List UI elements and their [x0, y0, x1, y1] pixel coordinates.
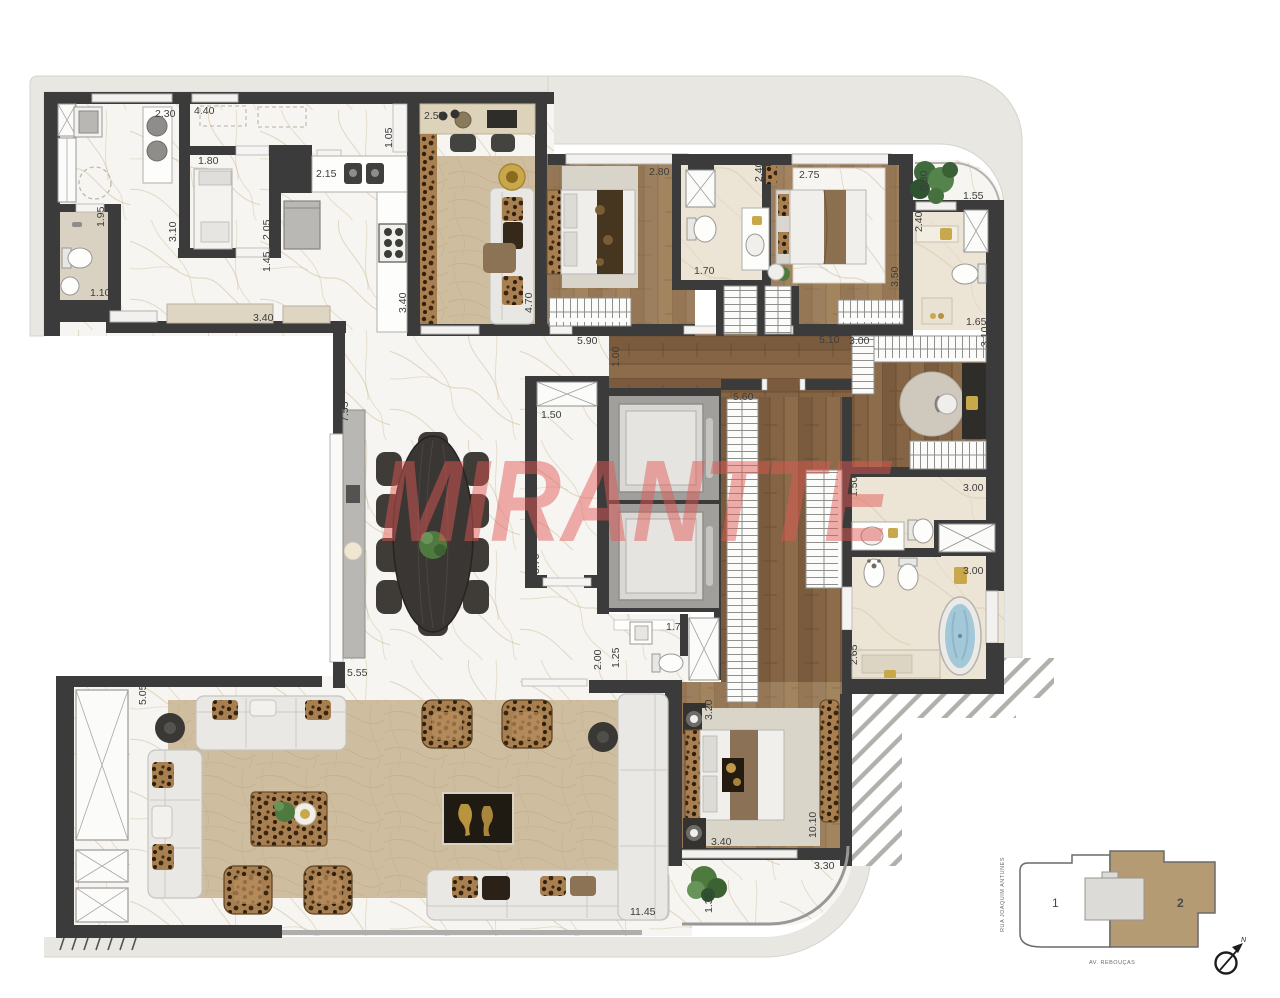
svg-text:2.40: 2.40	[913, 211, 925, 232]
svg-text:2.30: 2.30	[155, 108, 176, 120]
svg-text:1.10: 1.10	[90, 287, 111, 299]
svg-text:MIRANTTE: MIRANTTE	[380, 436, 892, 565]
svg-text:3.50: 3.50	[889, 266, 901, 287]
svg-text:2: 2	[1177, 896, 1184, 910]
svg-text:1.70: 1.70	[694, 265, 715, 277]
svg-text:1.45: 1.45	[261, 251, 273, 272]
svg-text:1.65: 1.65	[966, 316, 987, 328]
svg-text:4.70: 4.70	[523, 292, 535, 313]
svg-text:5.60: 5.60	[733, 391, 754, 403]
svg-text:3.40: 3.40	[711, 836, 732, 848]
svg-text:11.45: 11.45	[630, 906, 656, 918]
svg-text:AV. REBOUÇAS: AV. REBOUÇAS	[1089, 960, 1135, 966]
svg-text:1.95: 1.95	[95, 206, 107, 227]
svg-text:3.00: 3.00	[963, 482, 984, 494]
svg-text:0.80: 0.80	[918, 170, 930, 191]
svg-text:3.40: 3.40	[397, 292, 409, 313]
svg-text:1.75: 1.75	[666, 621, 687, 633]
svg-text:1.50: 1.50	[541, 409, 562, 421]
svg-text:7.55: 7.55	[339, 401, 351, 422]
svg-text:1.55: 1.55	[963, 190, 984, 202]
svg-text:RUA JOAQUIM ANTUNES: RUA JOAQUIM ANTUNES	[1000, 857, 1006, 932]
svg-text:2.00: 2.00	[592, 649, 604, 670]
svg-text:3.10: 3.10	[167, 221, 179, 242]
svg-text:2.40: 2.40	[753, 161, 765, 182]
svg-text:1.05: 1.05	[383, 127, 395, 148]
svg-text:1.25: 1.25	[610, 647, 622, 668]
svg-text:4.40: 4.40	[194, 105, 215, 117]
svg-text:3.30: 3.30	[814, 860, 835, 872]
svg-text:3.50: 3.50	[538, 296, 550, 317]
svg-text:2.15: 2.15	[316, 168, 337, 180]
svg-text:1.35: 1.35	[703, 892, 715, 913]
svg-text:1: 1	[1052, 896, 1059, 910]
svg-text:3.20: 3.20	[703, 699, 715, 720]
svg-text:2.80: 2.80	[649, 166, 670, 178]
svg-text:2.75: 2.75	[799, 169, 820, 181]
svg-text:5.90: 5.90	[577, 335, 598, 347]
svg-text:1.80: 1.80	[198, 155, 219, 167]
svg-text:2.05: 2.05	[261, 219, 273, 240]
svg-text:2.65: 2.65	[848, 644, 860, 665]
svg-text:3.40: 3.40	[253, 312, 274, 324]
svg-text:10.10: 10.10	[807, 812, 819, 838]
svg-text:3.00: 3.00	[963, 565, 984, 577]
svg-text:2.55: 2.55	[424, 110, 445, 122]
svg-text:5.55: 5.55	[347, 667, 368, 679]
svg-text:5.05: 5.05	[137, 684, 149, 705]
svg-text:5.10: 5.10	[819, 334, 840, 346]
svg-text:1.00: 1.00	[610, 346, 622, 367]
svg-text:3.00: 3.00	[849, 335, 870, 347]
svg-text:3.10: 3.10	[979, 326, 991, 347]
